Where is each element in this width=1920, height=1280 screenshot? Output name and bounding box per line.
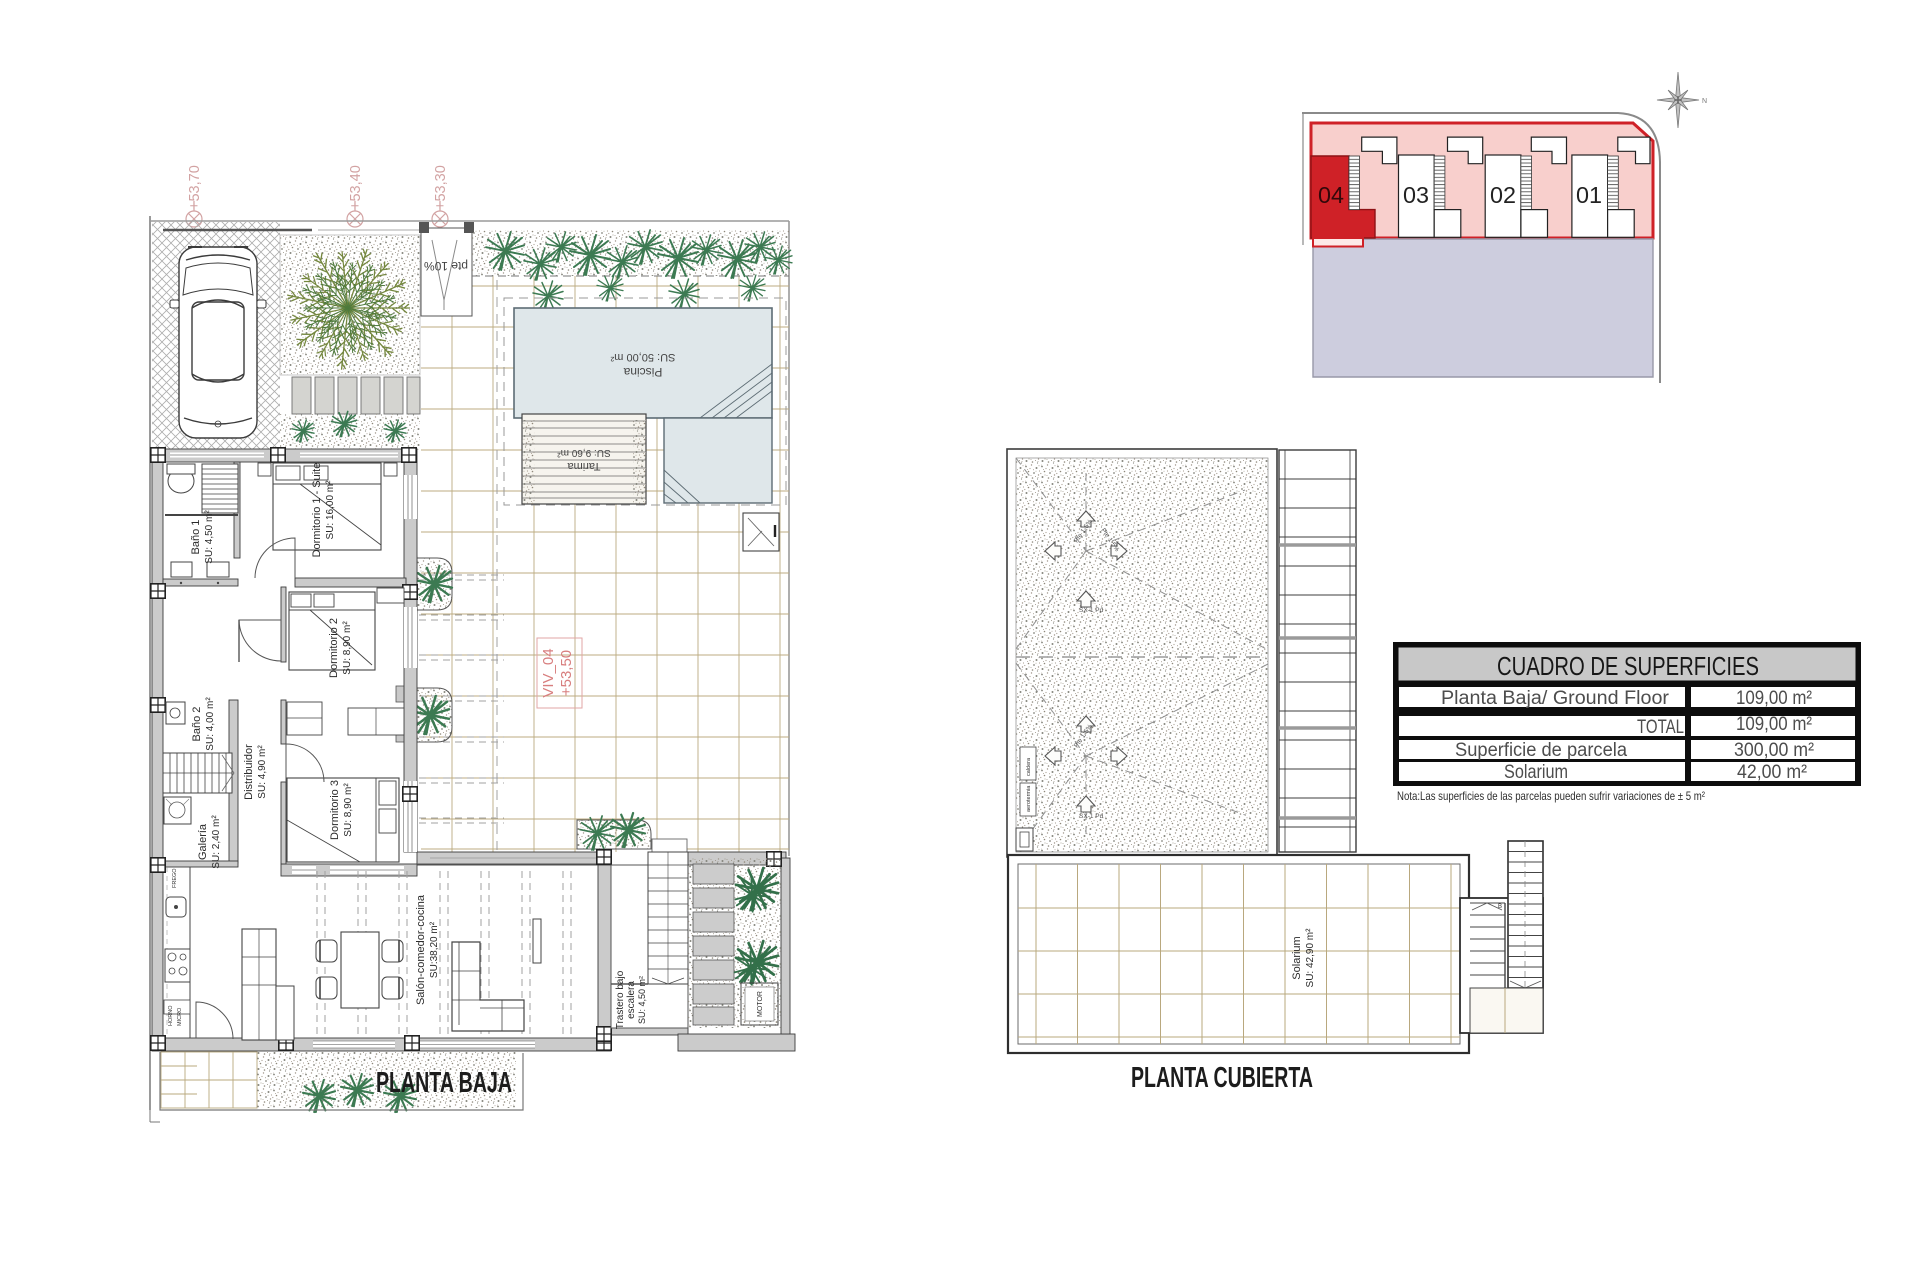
svg-text:SU: 4,00 m²: SU: 4,00 m² <box>205 697 216 751</box>
svg-text:42,00 m²: 42,00 m² <box>1737 762 1807 783</box>
svg-text:Planta Baja/ Ground Floor: Planta Baja/ Ground Floor <box>1441 688 1670 709</box>
svg-text:SU:38,20 m²: SU:38,20 m² <box>429 921 440 978</box>
svg-text:SU: 50,00 m²: SU: 50,00 m² <box>610 351 675 363</box>
svg-text:SU: 4,90 m²: SU: 4,90 m² <box>257 745 268 799</box>
svg-text:SX-1 Pd: SX-1 Pd <box>1079 607 1104 614</box>
svg-text:PLANTA CUBIERTA: PLANTA CUBIERTA <box>1131 1062 1313 1094</box>
svg-text:N: N <box>1702 98 1707 105</box>
svg-text:SX-1 Pd: SX-1 Pd <box>1079 813 1104 820</box>
svg-text:B: B <box>1498 904 1502 910</box>
svg-text:+53,50: +53,50 <box>558 650 575 696</box>
svg-text:Salón-comedor-cocina: Salón-comedor-cocina <box>415 894 427 1005</box>
svg-text:Solarium: Solarium <box>1291 936 1303 979</box>
svg-text:109,00 m²: 109,00 m² <box>1736 688 1812 709</box>
svg-text:aerotermia: aerotermia <box>1026 785 1032 812</box>
svg-text:MOTOR: MOTOR <box>757 991 764 1017</box>
svg-text:escalera: escalera <box>626 981 637 1019</box>
svg-text:VIV_04: VIV_04 <box>540 648 557 697</box>
svg-text:PLANTA BAJA: PLANTA BAJA <box>376 1067 512 1099</box>
svg-text:Tarima: Tarima <box>567 460 601 472</box>
svg-text:HORNO: HORNO <box>168 1005 174 1026</box>
svg-text:Baño 1: Baño 1 <box>190 520 202 555</box>
svg-text:CUADRO DE SUPERFICIES: CUADRO DE SUPERFICIES <box>1497 651 1759 681</box>
svg-text:Baño 2: Baño 2 <box>191 707 203 742</box>
svg-text:04: 04 <box>1318 182 1344 208</box>
svg-text:03: 03 <box>1403 182 1429 208</box>
svg-text:+53,40: +53,40 <box>348 165 364 210</box>
svg-text:FREGO: FREGO <box>172 868 178 888</box>
svg-text:+53,30: +53,30 <box>433 165 449 210</box>
svg-text:SU: 4,50 m²: SU: 4,50 m² <box>204 510 215 564</box>
svg-text:SU: 8,90 m²: SU: 8,90 m² <box>343 783 354 837</box>
svg-text:109,00 m²: 109,00 m² <box>1736 714 1812 735</box>
svg-text:Superficie de parcela: Superficie de parcela <box>1455 740 1627 761</box>
svg-text:SU: 9,60 m²: SU: 9,60 m² <box>557 447 611 458</box>
svg-text:Distribuidor: Distribuidor <box>243 744 255 800</box>
svg-text:Trastero bajo: Trastero bajo <box>615 970 626 1029</box>
svg-text:Dormitorio 1 - Suite: Dormitorio 1 - Suite <box>311 463 323 558</box>
svg-text:01: 01 <box>1576 182 1602 208</box>
svg-text:MICRO: MICRO <box>177 1007 183 1026</box>
svg-text:caldera: caldera <box>1026 757 1032 776</box>
svg-text:SU: 42,90 m²: SU: 42,90 m² <box>1305 928 1316 988</box>
svg-text:SU: 4,50 m²: SU: 4,50 m² <box>637 976 647 1024</box>
svg-text:Dormitorio 3: Dormitorio 3 <box>329 780 341 840</box>
svg-text:SU: 8,90 m²: SU: 8,90 m² <box>342 621 353 675</box>
svg-text:Nota:Las superficies de las pa: Nota:Las superficies de las parcelas pue… <box>1397 789 1705 803</box>
svg-text:Solarium: Solarium <box>1504 762 1568 783</box>
svg-text:SU: 2,40 m²: SU: 2,40 m² <box>211 815 222 869</box>
svg-text:Dormitorio 2: Dormitorio 2 <box>328 618 340 678</box>
svg-text:SU: 16,00 m²: SU: 16,00 m² <box>325 480 336 540</box>
svg-text:Piscina: Piscina <box>623 365 662 379</box>
svg-text:+53,70: +53,70 <box>187 165 203 210</box>
svg-text:02: 02 <box>1490 182 1516 208</box>
svg-text:TOTAL: TOTAL <box>1637 717 1684 738</box>
svg-text:pte 10%: pte 10% <box>424 259 468 273</box>
svg-text:300,00 m²: 300,00 m² <box>1734 740 1814 761</box>
svg-text:Galería: Galería <box>197 823 209 860</box>
